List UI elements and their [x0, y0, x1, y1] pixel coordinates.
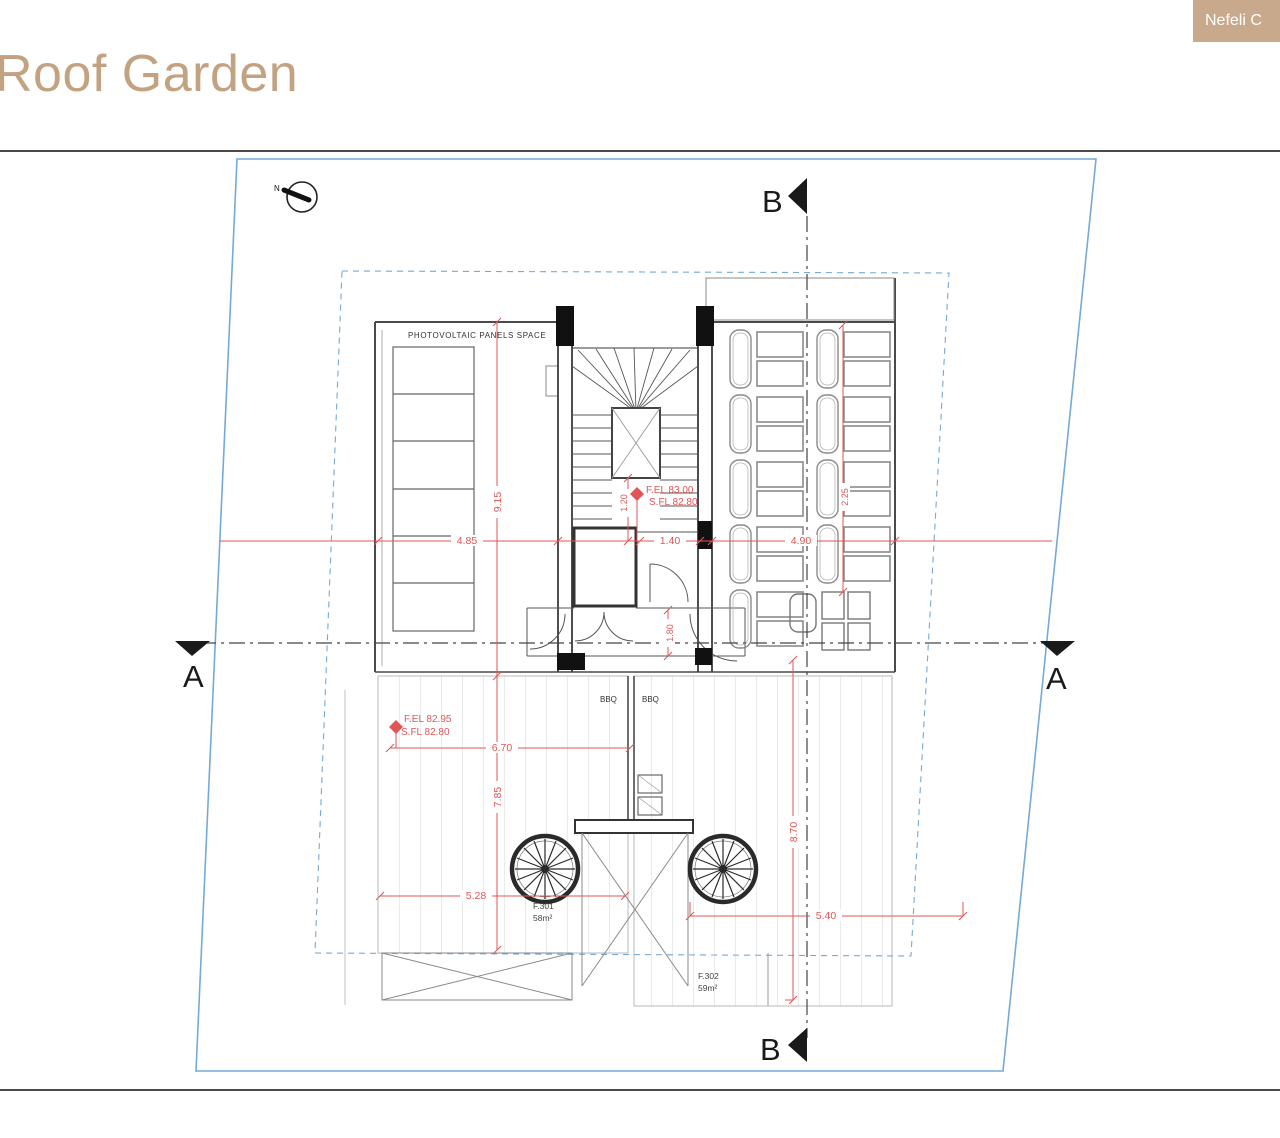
dim-height-pergola: 2.25: [840, 488, 850, 506]
section-label-b-top: B: [762, 184, 783, 219]
bbq-label-left: BBQ: [600, 695, 617, 704]
spiral-stair-right: [690, 836, 756, 902]
north-arrow-icon: N: [274, 182, 317, 212]
dim-width-unit302: 5.40: [816, 910, 837, 922]
elev-stair-line2: S.FL 82.80: [649, 497, 698, 508]
unit-301-code: F.301: [533, 901, 554, 911]
dim-width-pergola: 4.90: [791, 535, 812, 547]
spiral-stair-left: [512, 836, 578, 902]
pv-panels-area: PHOTOVOLTAIC PANELS SPACE: [393, 331, 546, 631]
elev-terrace-line2: S.FL 82.80: [401, 727, 450, 738]
dim-width-terrace: 6.70: [492, 742, 513, 754]
dim-width-left: 4.85: [457, 535, 478, 547]
dim-width-unit301: 5.28: [466, 890, 487, 902]
bbq-label-right: BBQ: [642, 695, 659, 704]
section-label-b-bottom: B: [760, 1032, 781, 1067]
section-label-a-right: A: [1046, 661, 1067, 696]
floor-plan-drawing: N PHOTOVOLTAIC PANELS SPACE: [0, 0, 1280, 1138]
section-arrow-b-bottom: [788, 1028, 807, 1062]
terrace-deck: [345, 676, 892, 1006]
section-arrow-a-left: [175, 641, 210, 656]
section-arrow-b-top: [788, 178, 807, 214]
dim-height-lobby: 1.80: [665, 624, 675, 642]
dim-width-stair: 1.40: [660, 535, 681, 547]
pv-space-label: PHOTOVOLTAIC PANELS SPACE: [408, 331, 546, 340]
section-label-a-left: A: [183, 659, 204, 694]
north-label: N: [274, 184, 280, 193]
crossed-structure: [382, 953, 572, 1000]
unit-302-code: F.302: [698, 971, 719, 981]
pergola-area: [730, 330, 890, 650]
unit-301-area: 58m²: [533, 913, 553, 923]
unit-302-area: 59m²: [698, 983, 718, 993]
dim-height-upper: 9.15: [492, 492, 504, 513]
elev-terrace-line1: F.EL 82.95: [404, 714, 452, 725]
dim-height-unit302: 8.70: [788, 822, 800, 843]
elev-stair-line1: F.EL 83.00: [646, 485, 694, 496]
dim-height-stairwell: 1.20: [619, 494, 629, 512]
elevation-stair: F.EL 83.00 S.FL 82.80: [630, 485, 698, 508]
dim-height-lower: 7.85: [492, 787, 504, 808]
